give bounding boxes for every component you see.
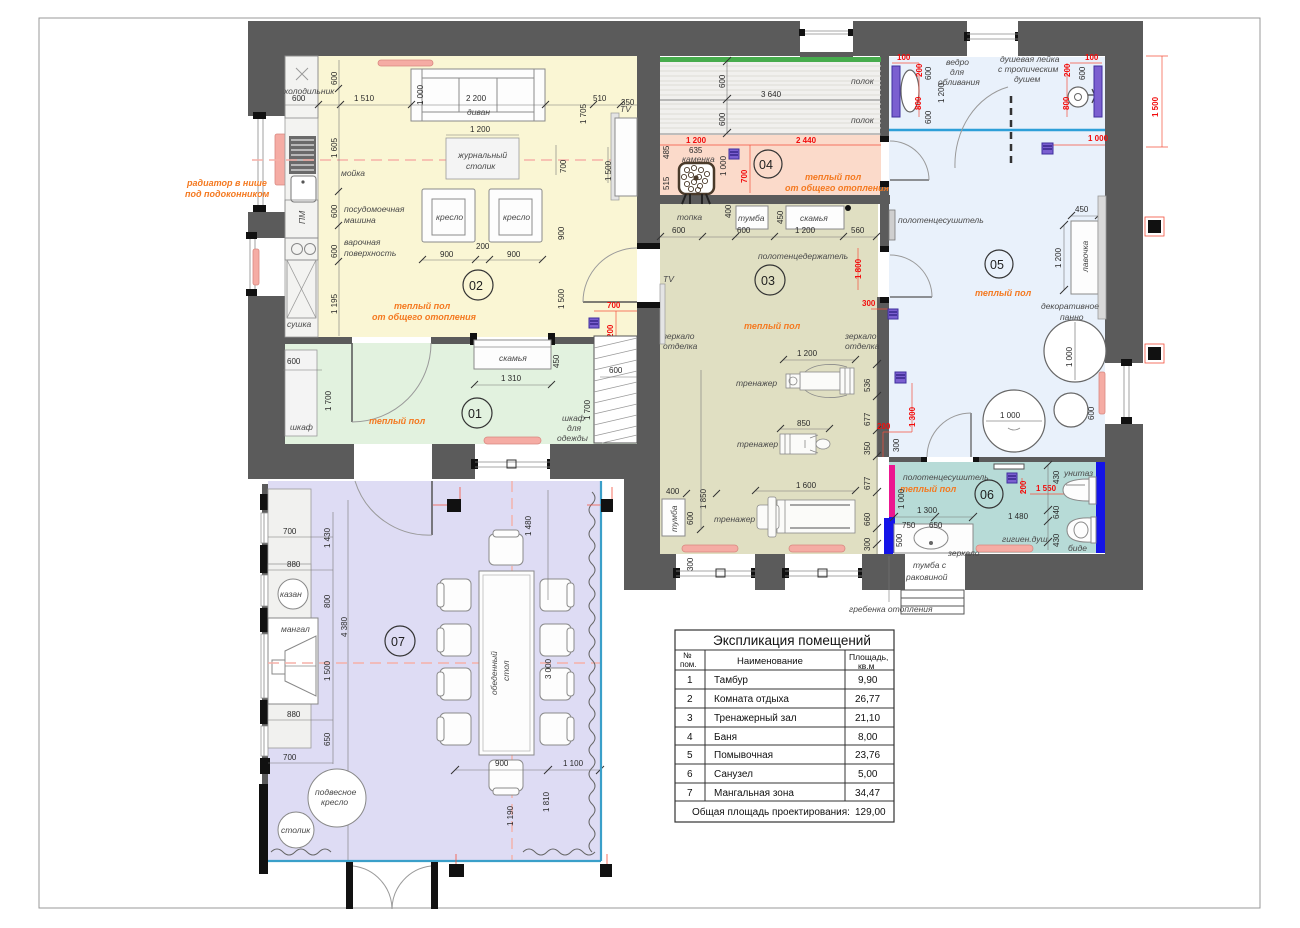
svg-text:Экспликация помещений: Экспликация помещений: [713, 633, 871, 648]
svg-text:стол: стол: [501, 660, 511, 681]
svg-text:кресло: кресло: [321, 797, 348, 807]
svg-text:1 500: 1 500: [557, 288, 566, 309]
svg-text:5,00: 5,00: [858, 769, 878, 780]
svg-text:поверхность: поверхность: [344, 248, 396, 258]
svg-text:мойка: мойка: [341, 168, 365, 178]
svg-text:1 100: 1 100: [563, 759, 584, 768]
svg-text:700: 700: [559, 159, 568, 173]
svg-text:1 310: 1 310: [501, 374, 522, 383]
svg-text:1 480: 1 480: [1008, 512, 1029, 521]
svg-text:диван: диван: [467, 107, 490, 117]
svg-text:21,10: 21,10: [855, 713, 880, 724]
svg-text:450: 450: [1075, 205, 1089, 214]
svg-text:450: 450: [552, 354, 561, 368]
svg-text:посудомоечная: посудомоечная: [344, 204, 405, 214]
svg-text:26,77: 26,77: [855, 694, 880, 705]
svg-text:теплый пол: теплый пол: [900, 484, 957, 494]
svg-text:600: 600: [1078, 66, 1087, 80]
svg-text:тренажер: тренажер: [736, 378, 777, 388]
svg-text:1 000: 1 000: [1065, 346, 1074, 367]
svg-text:200: 200: [1063, 63, 1072, 77]
svg-text:тумба: тумба: [738, 213, 765, 223]
svg-text:Санузел: Санузел: [714, 769, 753, 780]
svg-text:для: для: [567, 423, 581, 433]
svg-text:02: 02: [469, 279, 483, 293]
svg-text:ведро: ведро: [946, 57, 969, 67]
svg-text:тренажер: тренажер: [714, 514, 755, 524]
svg-text:400: 400: [724, 204, 733, 218]
svg-text:Общая площадь проектирования:: Общая площадь проектирования:: [692, 806, 850, 818]
svg-text:раковиной: раковиной: [905, 572, 948, 582]
svg-text:теплый пол: теплый пол: [805, 172, 862, 182]
svg-text:880: 880: [287, 710, 301, 719]
svg-text:зеркало: зеркало: [662, 331, 695, 341]
svg-text:1 605: 1 605: [330, 137, 339, 158]
svg-text:1 200: 1 200: [1054, 247, 1063, 268]
svg-text:300: 300: [686, 557, 695, 571]
svg-text:1 600: 1 600: [796, 481, 817, 490]
svg-text:тумба: тумба: [669, 505, 679, 532]
svg-text:гребенка отопления: гребенка отопления: [849, 604, 933, 614]
svg-text:600: 600: [718, 112, 727, 126]
svg-text:200: 200: [1019, 480, 1028, 494]
svg-text:Баня: Баня: [714, 732, 737, 743]
svg-text:200: 200: [476, 242, 490, 251]
svg-text:4: 4: [687, 732, 693, 743]
svg-text:900: 900: [495, 759, 509, 768]
svg-text:600: 600: [686, 511, 695, 525]
svg-text:душевая лейка: душевая лейка: [1000, 54, 1060, 64]
svg-text:800: 800: [914, 96, 923, 110]
svg-text:1 000: 1 000: [719, 155, 728, 176]
svg-text:Тамбур: Тамбур: [714, 674, 748, 686]
svg-text:теплый пол: теплый пол: [394, 301, 451, 311]
svg-text:800: 800: [323, 594, 332, 608]
svg-text:душем: душем: [1014, 74, 1041, 84]
svg-text:1 300: 1 300: [917, 506, 938, 515]
svg-text:700: 700: [740, 169, 749, 183]
svg-text:1 200: 1 200: [937, 82, 946, 103]
svg-text:4 380: 4 380: [340, 616, 349, 637]
svg-text:подвесное: подвесное: [315, 787, 357, 797]
svg-text:350: 350: [621, 98, 635, 107]
svg-text:скамья: скамья: [800, 213, 828, 223]
svg-text:9,90: 9,90: [858, 675, 878, 686]
svg-text:1 500: 1 500: [604, 160, 613, 181]
svg-text:биде: биде: [1068, 543, 1087, 553]
svg-text:машина: машина: [344, 215, 376, 225]
svg-text:3 640: 3 640: [761, 90, 782, 99]
svg-text:тренажер: тренажер: [737, 439, 778, 449]
svg-text:TV: TV: [663, 274, 675, 284]
svg-text:зеркало: зеркало: [844, 331, 877, 341]
svg-text:1 480: 1 480: [524, 515, 533, 536]
svg-text:1 430: 1 430: [323, 527, 332, 548]
svg-text:1 200: 1 200: [797, 349, 818, 358]
svg-text:кресло: кресло: [436, 212, 463, 222]
svg-text:обеденный: обеденный: [489, 651, 499, 695]
svg-text:1 500: 1 500: [323, 660, 332, 681]
svg-text:300: 300: [862, 299, 876, 308]
svg-text:129,00: 129,00: [855, 807, 886, 818]
svg-text:Мангальная зона: Мангальная зона: [714, 788, 794, 799]
svg-text:тумба с: тумба с: [913, 560, 947, 570]
svg-text:600: 600: [1087, 406, 1096, 420]
svg-text:1 800: 1 800: [854, 258, 863, 279]
svg-text:топка: топка: [677, 212, 702, 222]
svg-text:600: 600: [924, 66, 933, 80]
svg-text:№: №: [683, 651, 692, 660]
svg-text:200: 200: [877, 422, 891, 431]
svg-text:под подоконником: под подоконником: [185, 189, 270, 199]
svg-text:03: 03: [761, 274, 775, 288]
svg-text:01: 01: [468, 407, 482, 421]
svg-text:зеркало: зеркало: [947, 548, 980, 558]
svg-text:полотенцедержатель: полотенцедержатель: [758, 251, 848, 261]
svg-text:750: 750: [902, 521, 916, 530]
svg-text:ПМ: ПМ: [297, 210, 307, 224]
svg-text:1 700: 1 700: [583, 399, 592, 420]
svg-text:шкаф: шкаф: [290, 422, 313, 432]
svg-text:1 195: 1 195: [330, 293, 339, 314]
svg-text:350: 350: [863, 441, 872, 455]
svg-text:06: 06: [980, 488, 994, 502]
svg-text:3 000: 3 000: [544, 658, 553, 679]
svg-text:кресло: кресло: [503, 212, 530, 222]
svg-text:300: 300: [892, 438, 901, 452]
svg-text:700: 700: [607, 301, 621, 310]
svg-text:1 500: 1 500: [1151, 96, 1160, 117]
svg-text:600: 600: [330, 71, 339, 85]
svg-text:07: 07: [391, 635, 405, 649]
svg-text:отделка: отделка: [663, 341, 698, 351]
svg-text:теплый пол: теплый пол: [369, 416, 426, 426]
svg-text:23,76: 23,76: [855, 750, 880, 761]
svg-text:485: 485: [662, 145, 671, 159]
svg-text:650: 650: [323, 732, 332, 746]
svg-text:8,00: 8,00: [858, 732, 878, 743]
svg-text:5: 5: [687, 750, 693, 761]
svg-text:650: 650: [929, 521, 943, 530]
svg-text:600: 600: [330, 204, 339, 218]
svg-text:600: 600: [330, 244, 339, 258]
svg-text:декоративное: декоративное: [1041, 301, 1099, 311]
svg-text:700: 700: [283, 527, 297, 536]
svg-text:880: 880: [287, 560, 301, 569]
svg-text:600: 600: [672, 226, 686, 235]
svg-text:600: 600: [292, 94, 306, 103]
svg-text:660: 660: [863, 512, 872, 526]
svg-text:столик: столик: [466, 161, 496, 171]
svg-text:200: 200: [915, 63, 924, 77]
svg-text:300: 300: [863, 537, 872, 551]
svg-text:теплый пол: теплый пол: [975, 288, 1032, 298]
svg-text:Помывочная: Помывочная: [714, 750, 773, 761]
svg-text:мангал: мангал: [281, 624, 310, 634]
svg-text:677: 677: [863, 476, 872, 490]
svg-text:полок: полок: [851, 76, 875, 86]
svg-text:1 000: 1 000: [416, 84, 425, 105]
svg-text:столик: столик: [281, 825, 311, 835]
svg-text:3: 3: [687, 713, 693, 724]
svg-text:2 200: 2 200: [466, 94, 487, 103]
svg-text:1 550: 1 550: [1036, 484, 1057, 493]
svg-text:450: 450: [776, 210, 785, 224]
svg-text:7: 7: [687, 788, 693, 799]
svg-text:1: 1: [687, 675, 693, 686]
svg-text:холодильник: холодильник: [283, 86, 335, 96]
svg-text:600: 600: [609, 366, 623, 375]
svg-text:гигиен.душ: гигиен.душ: [1002, 534, 1048, 544]
svg-text:640: 640: [1052, 505, 1061, 519]
svg-text:журнальный: журнальный: [457, 150, 507, 160]
svg-text:радиатор в нише: радиатор в нише: [186, 178, 267, 188]
svg-text:850: 850: [797, 419, 811, 428]
svg-text:560: 560: [851, 226, 865, 235]
svg-text:1 200: 1 200: [686, 136, 707, 145]
svg-text:600: 600: [287, 357, 301, 366]
svg-text:полотенцесушитель: полотенцесушитель: [898, 215, 984, 225]
svg-text:2 440: 2 440: [796, 136, 817, 145]
svg-text:1 300: 1 300: [908, 406, 917, 427]
svg-text:полок: полок: [851, 115, 875, 125]
svg-text:430: 430: [1052, 470, 1061, 484]
svg-text:2: 2: [687, 694, 693, 705]
svg-text:1 000: 1 000: [1088, 134, 1109, 143]
svg-text:04: 04: [759, 158, 773, 172]
svg-text:1 850: 1 850: [699, 488, 708, 509]
svg-text:Комната отдыха: Комната отдыха: [714, 694, 789, 705]
svg-text:800: 800: [1062, 96, 1071, 110]
svg-text:100: 100: [897, 53, 911, 62]
svg-text:пом.: пом.: [680, 660, 697, 669]
svg-text:теплый пол: теплый пол: [744, 321, 801, 331]
svg-text:500: 500: [895, 533, 904, 547]
svg-text:6: 6: [687, 769, 693, 780]
svg-text:одежды: одежды: [557, 433, 589, 443]
svg-text:600: 600: [718, 74, 727, 88]
svg-text:600: 600: [924, 110, 933, 124]
svg-text:400: 400: [666, 487, 680, 496]
svg-text:для: для: [950, 67, 964, 77]
svg-text:казан: казан: [280, 589, 302, 599]
svg-text:515: 515: [662, 176, 671, 190]
svg-text:1 190: 1 190: [506, 805, 515, 826]
svg-text:05: 05: [990, 258, 1004, 272]
svg-text:677: 677: [863, 412, 872, 426]
svg-text:536: 536: [863, 378, 872, 392]
svg-text:полотенцесушитель: полотенцесушитель: [903, 472, 989, 482]
svg-text:600: 600: [737, 226, 751, 235]
svg-text:от общего отопления: от общего отопления: [785, 183, 890, 193]
svg-text:700: 700: [283, 753, 297, 762]
svg-text:сушка: сушка: [287, 319, 311, 329]
svg-text:1 200: 1 200: [795, 226, 816, 235]
svg-text:1 510: 1 510: [354, 94, 375, 103]
svg-text:1 700: 1 700: [324, 390, 333, 411]
svg-text:100: 100: [1085, 53, 1099, 62]
svg-text:1 000: 1 000: [1000, 411, 1021, 420]
svg-text:430: 430: [1052, 533, 1061, 547]
svg-text:1 705: 1 705: [579, 103, 588, 124]
svg-text:Тренажерный зал: Тренажерный зал: [714, 713, 797, 724]
svg-text:от общего отопления: от общего отопления: [372, 312, 477, 322]
svg-text:1 000: 1 000: [897, 488, 906, 509]
svg-text:скамья: скамья: [499, 353, 527, 363]
svg-text:варочная: варочная: [344, 237, 381, 247]
svg-text:900: 900: [557, 226, 566, 240]
svg-text:34,47: 34,47: [855, 788, 880, 799]
svg-text:510: 510: [593, 94, 607, 103]
svg-text:лавочка: лавочка: [1080, 240, 1090, 273]
svg-text:с тропическим: с тропическим: [998, 64, 1058, 74]
svg-text:Наименование: Наименование: [737, 656, 803, 667]
svg-text:отделка: отделка: [845, 341, 880, 351]
svg-text:1 810: 1 810: [542, 791, 551, 812]
svg-text:1 200: 1 200: [470, 125, 491, 134]
svg-text:шкаф: шкаф: [562, 413, 585, 423]
svg-text:900: 900: [507, 250, 521, 259]
svg-text:900: 900: [440, 250, 454, 259]
